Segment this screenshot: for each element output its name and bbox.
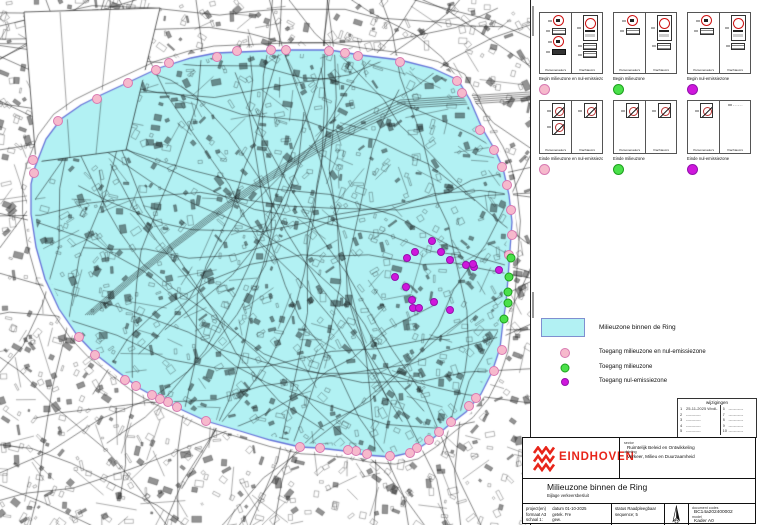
access-point-milieuzone-en-nul-emissiezone [497,345,507,355]
access-point-nul-emissiezone [408,296,416,304]
access-point-milieuzone-en-nul-emissiezone [295,442,305,452]
sub-plaque-icon [731,43,745,50]
legend-item: Toegang nul-emissiezone [539,376,751,388]
access-point-nul-emissiezone [430,298,438,306]
dark-plaque-icon [552,49,566,55]
access-point-nul-emissiezone [495,266,503,274]
access-point-milieuzone [500,315,509,324]
sign-row-label [652,45,656,47]
sign-cell: ------Vrachtauto's [719,101,751,153]
sign-group-caption: Begin milieuzone [613,76,677,81]
access-point-nul-emissiezone [415,304,423,312]
sequence-line: sequence; 5 [615,512,664,518]
sign-row-label [652,110,656,112]
access-point-milieuzone-en-nul-emissiezone [74,332,84,342]
access-point-milieuzone-en-nul-emissiezone [201,416,211,426]
access-point-milieuzone-en-nul-emissiezone [452,76,462,86]
title-block-header: EINDHOVEN sector Ruimtelijk Beleid en On… [523,438,755,479]
traffic-sign-box: Personenauto'sVrachtauto's [687,12,751,74]
sign-cell-caption: Personenauto's [619,68,640,72]
sign-row-label [577,27,581,29]
project-fields: project(en)formaat A3schaal 1: [526,506,546,525]
sign-group: Personenauto'sVrachtauto'sBegin milieuzo… [539,12,603,95]
sign-cell: Personenauto's [688,101,719,153]
sign-row-label [728,104,732,106]
access-point-milieuzone-en-nul-emissiezone [434,427,444,437]
sign-group: Personenauto'sVrachtauto'sEinde milieuzo… [613,100,677,175]
sign-cell: Vrachtauto's [719,13,751,73]
sub-plaque-icon [626,28,640,35]
legend-item: Toegang milieuzone [539,362,751,374]
sign-row-label [578,110,582,112]
sub-plaque-icon [657,43,671,50]
revisions-table: wijzigingen 125-11-2025 WvdL2-----------… [677,398,757,438]
sign-group-dot-magenta [687,84,698,95]
access-point-milieuzone-en-nul-emissiezone [232,46,242,56]
access-point-milieuzone-en-nul-emissiezone [343,445,353,455]
end-zone-sign-icon [700,103,713,118]
end-zone-sign-icon [658,103,671,118]
access-point-milieuzone-en-nul-emissiezone [212,52,222,62]
sign-cell: Vrachtauto's [645,13,677,73]
sign-cell: Vrachtauto's [645,101,677,153]
access-point-milieuzone-en-nul-emissiezone [131,381,141,391]
eindhoven-waves-icon [532,446,556,472]
access-point-milieuzone-en-nul-emissiezone [266,45,276,55]
access-point-milieuzone-en-nul-emissiezone [507,230,517,240]
access-point-nul-emissiezone [428,237,436,245]
sign-group: Personenauto'sVrachtauto'sEinde milieuzo… [539,100,603,175]
sign-group-dot-green [613,84,624,95]
sign-row-label [696,20,700,22]
access-point-milieuzone-en-nul-emissiezone [29,168,39,178]
sign-group-dot-pink [539,164,550,175]
access-point-milieuzone-en-nul-emissiezone [489,145,499,155]
access-point-milieuzone-en-nul-emissiezone [395,57,405,67]
project-field: schaal 1: [526,517,546,523]
document-code-cell: document codes BC14a202400002 model Kade… [688,504,755,525]
access-point-milieuzone-en-nul-emissiezone [324,46,334,56]
north-arrow-cell [664,504,688,525]
frame-tick [532,6,534,36]
zone-sign-icon [583,15,598,41]
sign-cell: Personenauto's [614,13,645,73]
access-point-milieuzone-en-nul-emissiezone [506,205,516,215]
sign-group: Personenauto's------Vrachtauto'sEinde nu… [687,100,751,175]
drawing-title-cell: Milieuzone binnen de Ring Bijlage verkee… [523,479,755,504]
access-point-milieuzone [505,273,514,282]
legend-dot-pink [560,348,570,358]
access-point-nul-emissiezone [469,260,477,268]
legend-dot-magenta [561,378,569,386]
sign-cell-caption: Vrachtauto's [579,148,595,152]
access-point-nul-emissiezone [402,283,410,291]
sign-cell: Personenauto's [614,101,645,153]
afdeling-value: Verkeer, Milieu en Duurzaamheid [627,454,757,459]
north-arrow-icon [671,505,682,524]
legend-item-label: Toegang milieuzone [599,364,652,370]
drawing-title: Milieuzone binnen de Ring [547,482,755,492]
title-block-footer: project(en)formaat A3schaal 1: datum 01-… [523,504,755,525]
eindhoven-logo: EINDHOVEN [523,438,619,479]
access-point-milieuzone-en-nul-emissiezone [424,435,434,445]
sign-cell-caption: Personenauto's [693,148,714,152]
sign-group-dot-green [613,164,624,175]
traffic-sign-box: Personenauto'sVrachtauto's [613,12,677,74]
model-value: Kader A0 [694,519,755,524]
access-point-nul-emissiezone [437,248,445,256]
sign-cell-caption: Personenauto's [693,68,714,72]
access-point-nul-emissiezone [446,306,454,314]
sign-cell-caption: Vrachtauto's [653,68,669,72]
sign-cell-caption: Vrachtauto's [653,148,669,152]
sign-cell-caption: Vrachtauto's [579,68,595,72]
legend-item-label: Toegang nul-emissiezone [599,378,667,384]
prohibition-sign-icon [627,15,638,26]
sign-cell: Vrachtauto's [571,13,603,73]
sign-cell-caption: Personenauto's [619,148,640,152]
access-point-milieuzone-en-nul-emissiezone [489,366,499,376]
sign-row-label [622,20,626,22]
sign-row-label [546,51,550,53]
sign-cell-caption: Personenauto's [545,68,566,72]
access-point-milieuzone-en-nul-emissiezone [353,51,363,61]
sign-row-label [578,45,582,47]
sign-cell-caption: Personenauto's [545,148,566,152]
sign-group-caption: Begin milieuzone en nul-emissiezone [539,76,603,81]
sign-group-caption: Einde milieuzone [613,156,677,161]
traffic-sign-box: Personenauto'sVrachtauto's [539,12,603,74]
end-zone-sign-icon [552,103,565,118]
access-point-milieuzone [504,288,513,297]
sign-row-label [548,20,552,22]
sign-row-label [547,126,551,128]
access-point-milieuzone-en-nul-emissiezone [53,116,63,126]
sub-plaque-icon [700,28,714,35]
frame-tick [532,292,534,318]
revision-row: 5----------- [680,428,718,434]
sub-plaque-icon [583,51,597,58]
access-point-milieuzone-en-nul-emissiezone [123,78,133,88]
access-point-nul-emissiezone [446,256,454,264]
sign-group-caption: Einde milieuzone en nul-emissiezone [539,156,603,161]
traffic-sign-box: Personenauto'sVrachtauto's [613,100,677,154]
legend-item: Toegang milieuzone en nul-emissiezone [539,347,751,359]
access-point-milieuzone-en-nul-emissiezone [464,401,474,411]
access-point-milieuzone-en-nul-emissiezone [92,94,102,104]
access-point-milieuzone [504,299,513,308]
access-point-milieuzone-en-nul-emissiezone [172,402,182,412]
revision-row: 10----------- [723,428,755,434]
access-point-milieuzone-en-nul-emissiezone [28,155,38,165]
sign-row-label [548,41,552,43]
sub-plaque-icon [583,43,597,50]
sign-row-label [725,27,729,29]
dash-placeholder: ------ [733,103,743,107]
legend-dot-green [561,363,570,372]
revisions-column-left: 125-11-2025 WvdL2-----------3-----------… [678,405,720,435]
prohibition-sign-icon [701,15,712,26]
access-point-milieuzone-en-nul-emissiezone [340,48,350,58]
traffic-sign-box: Personenauto'sVrachtauto's [539,100,603,154]
access-point-milieuzone-en-nul-emissiezone [147,390,157,400]
access-point-milieuzone-en-nul-emissiezone [502,180,512,190]
sign-group-dot-magenta [687,164,698,175]
sign-group-dot-pink [539,84,550,95]
sign-group-caption: Einde nul-emissiezone [687,156,751,161]
access-point-milieuzone-en-nul-emissiezone [164,58,174,68]
access-point-milieuzone-en-nul-emissiezone [362,449,372,459]
milieuzone-swatch [541,318,585,337]
end-zone-sign-icon [584,103,597,118]
sign-row-label [546,30,550,32]
sign-cell: Personenauto's [688,13,719,73]
zone-sign-icon [731,15,746,41]
sub-plaque-icon [552,28,566,35]
traffic-signs-legend: Personenauto'sVrachtauto'sBegin milieuzo… [539,12,751,180]
drawing-subtitle: Bijlage verkeersbesluit [547,493,755,498]
revisions-column-right: 6-----------7-----------8-----------9---… [720,405,757,435]
end-zone-sign-icon [626,103,639,118]
access-point-milieuzone [507,254,516,263]
date-field: datum 01-10-2025 [552,506,586,512]
sign-cell-caption: Vrachtauto's [727,68,743,72]
sign-cell: Personenauto's [540,13,571,73]
access-point-milieuzone-en-nul-emissiezone [90,350,100,360]
sign-group-caption: Begin nul-emissiezone [687,76,751,81]
sign-row-label [726,45,730,47]
access-point-milieuzone-en-nul-emissiezone [497,162,507,172]
project-field: project(en) [526,506,546,512]
access-point-nul-emissiezone [411,248,419,256]
sign-group: Personenauto'sVrachtauto'sBegin nul-emis… [687,12,751,95]
date-fields: datum 01-10-2025getek. Fregew. [552,506,586,525]
sign-row-label [651,27,655,29]
prohibition-sign-icon [553,36,564,47]
access-point-nul-emissiezone [391,273,399,281]
end-zone-sign-icon [552,120,565,135]
sign-cell: Personenauto's [540,101,571,153]
department-cell: sector Ruimtelijk Beleid en Ontwikkeling… [619,438,757,479]
access-point-milieuzone-en-nul-emissiezone [151,65,161,75]
access-point-milieuzone-en-nul-emissiezone [385,451,395,461]
sign-row-label [621,110,625,112]
sign-row-label [620,30,624,32]
milieuzone-label: Milieuzone binnen de Ring [599,324,676,331]
sign-group: Personenauto'sVrachtauto'sBegin milieuzo… [613,12,677,95]
prohibition-sign-icon [553,15,564,26]
sign-cell: Vrachtauto's [571,101,603,153]
title-block: EINDHOVEN sector Ruimtelijk Beleid en On… [522,437,756,524]
access-point-milieuzone-en-nul-emissiezone [457,88,467,98]
access-point-milieuzone-en-nul-emissiezone [315,443,325,453]
legend-item-label: Toegang milieuzone en nul-emissiezone [599,349,706,355]
access-point-nul-emissiezone [403,254,411,262]
status-cell: status Raadpleegbaar sequence; 5 [611,504,664,525]
access-point-milieuzone-en-nul-emissiezone [281,45,291,55]
access-points-layer [0,0,530,525]
project-info-cell: project(en)formaat A3schaal 1: datum 01-… [523,504,611,525]
date-field: gew. [552,517,586,523]
sign-row-label [578,54,582,56]
access-point-milieuzone-en-nul-emissiezone [446,417,456,427]
sign-row-label [547,110,551,112]
sign-row-label [695,110,699,112]
zone-sign-icon [657,15,672,41]
access-point-milieuzone-en-nul-emissiezone [475,125,485,135]
access-point-milieuzone-en-nul-emissiezone [405,448,415,458]
sign-cell-caption: Vrachtauto's [727,148,743,152]
sign-row-label [694,30,698,32]
traffic-sign-box: Personenauto's------Vrachtauto's [687,100,751,154]
city-map [0,0,530,525]
access-point-milieuzone-en-nul-emissiezone [120,375,130,385]
